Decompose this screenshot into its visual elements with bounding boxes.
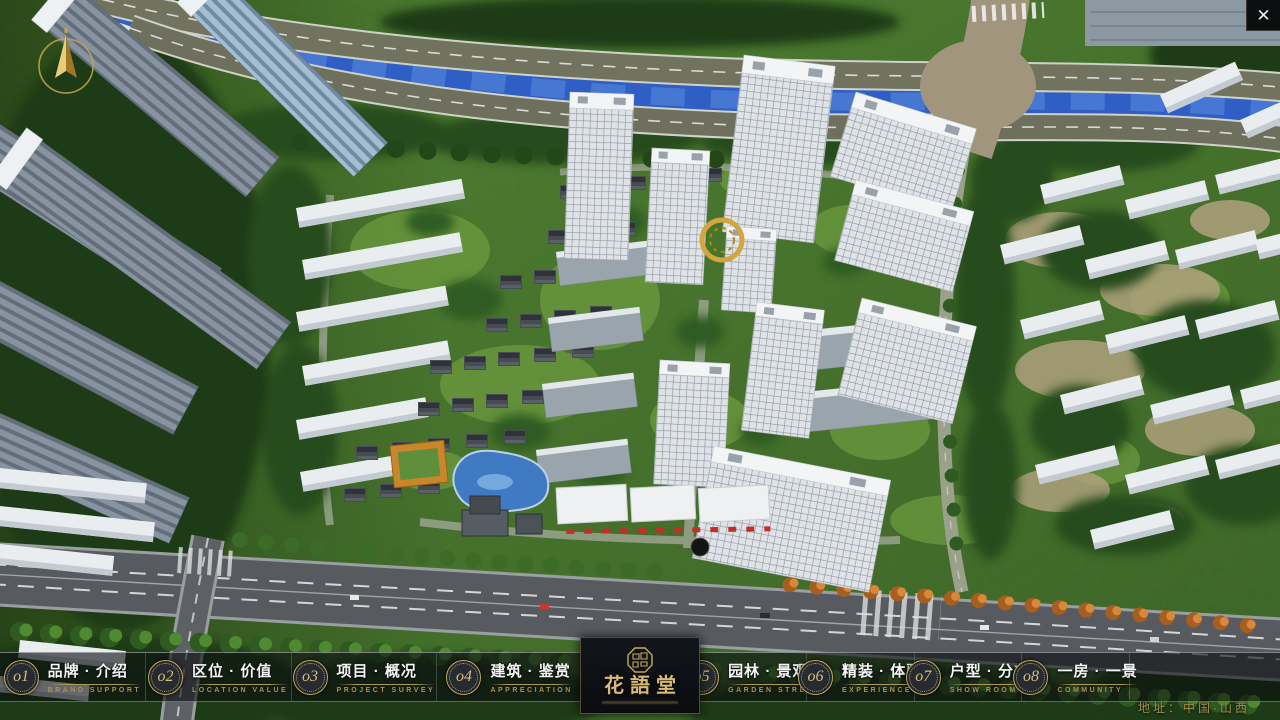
nav-item-brand-intro[interactable]: o1 品牌 · 介绍 BRAND SUPPORT: [0, 653, 145, 701]
nav-item-location-value[interactable]: o2 区位 · 价值 LOCATION VALUE: [145, 653, 291, 701]
nav-divider: [192, 684, 288, 685]
nav-label-en: COMMUNITY: [1057, 687, 1123, 694]
nav-item-garden-landscape[interactable]: o5 园林 · 景观 GARDEN STREET: [698, 653, 806, 701]
close-button[interactable]: ✕: [1246, 0, 1280, 31]
nav-label-en: LOCATION VALUE: [192, 687, 288, 694]
masterplan-render[interactable]: [0, 0, 1280, 720]
close-icon: ✕: [1256, 7, 1270, 24]
nav-label-en: BRAND SUPPORT: [48, 687, 142, 694]
nav-divider: [490, 684, 572, 685]
nav-number-badge: o8: [1013, 660, 1048, 695]
nav-number-badge: o1: [4, 660, 39, 695]
nav-label-en: SHOW ROOM: [950, 687, 1018, 694]
brand-logo-panel[interactable]: 花語堂: [580, 637, 700, 714]
brand-logo-title: 花語堂: [598, 676, 682, 696]
nav-label-en: APPRECIATION: [490, 687, 572, 694]
project-address: 地址：中国·山西: [1138, 699, 1250, 716]
nav-item-decoration-experience[interactable]: o6 精装 · 体验 EXPERIENCE: [806, 653, 914, 701]
nav-number-badge: o6: [798, 660, 833, 695]
nav-group-left: o1 品牌 · 介绍 BRAND SUPPORT o2 区位 · 价值 LOCA…: [0, 653, 582, 701]
nav-label-zh: 园林 · 景观: [728, 660, 808, 681]
nav-group-right: o5 园林 · 景观 GARDEN STREET o6 精装 · 体验 EXPE…: [698, 653, 1280, 701]
brand-seal-icon: [627, 647, 653, 673]
nav-number-badge: o4: [446, 660, 481, 695]
nav-label-zh: 品牌 · 介绍: [48, 660, 128, 681]
app-window: ✕ o1 品牌 · 介绍 BRAND SUPPORT o2 区位 · 价值 LO…: [0, 0, 1280, 720]
nav-label-zh: 项目 · 概况: [337, 660, 417, 681]
nav-number-badge: o3: [293, 660, 328, 695]
nav-label-zh: 区位 · 价值: [192, 660, 272, 681]
nav-item-project-survey[interactable]: o3 项目 · 概况 PROJECT SURVEY: [291, 653, 437, 701]
nav-label-en: PROJECT SURVEY: [337, 687, 436, 694]
nav-label-zh: 一房 · 一景: [1057, 660, 1137, 681]
clubhouse-orange: [390, 440, 448, 487]
nav-number-badge: o2: [148, 660, 183, 695]
nav-divider: [48, 684, 142, 685]
nav-label-en: EXPERIENCE: [842, 687, 912, 694]
nav-divider: [1057, 684, 1137, 685]
nav-divider: [337, 684, 436, 685]
nav-number-badge: o7: [906, 660, 941, 695]
nav-item-architecture[interactable]: o4 建筑 · 鉴赏 APPRECIATION: [436, 653, 582, 701]
nav-label-zh: 建筑 · 鉴赏: [490, 660, 570, 681]
entry-plaza-circle: [691, 538, 709, 556]
nav-item-room-view[interactable]: o8 一房 · 一景 COMMUNITY: [1021, 653, 1129, 701]
logo-tagline-bar: [602, 701, 678, 704]
nav-item-floorplan-distribution[interactable]: o7 户型 · 分布 SHOW ROOM: [914, 653, 1022, 701]
nav-spacer: [1129, 653, 1280, 701]
